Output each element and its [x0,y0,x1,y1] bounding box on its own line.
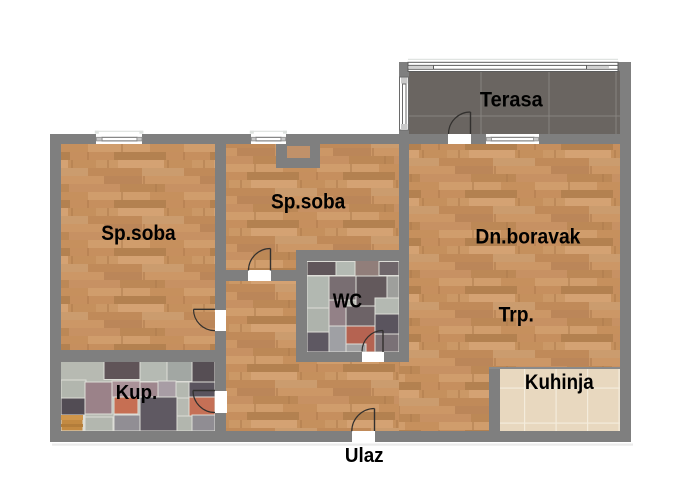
svg-text:Trp.: Trp. [499,304,534,327]
svg-text:Dn.boravak: Dn.boravak [475,226,580,249]
svg-text:Kup.: Kup. [116,382,158,404]
svg-text:Kuhinja: Kuhinja [525,371,594,394]
svg-text:Ulaz: Ulaz [345,445,384,467]
svg-text:Sp.soba: Sp.soba [101,222,176,245]
svg-text:Sp.soba: Sp.soba [271,191,346,214]
svg-text:WC: WC [333,290,362,312]
svg-text:Terasa: Terasa [480,89,543,112]
